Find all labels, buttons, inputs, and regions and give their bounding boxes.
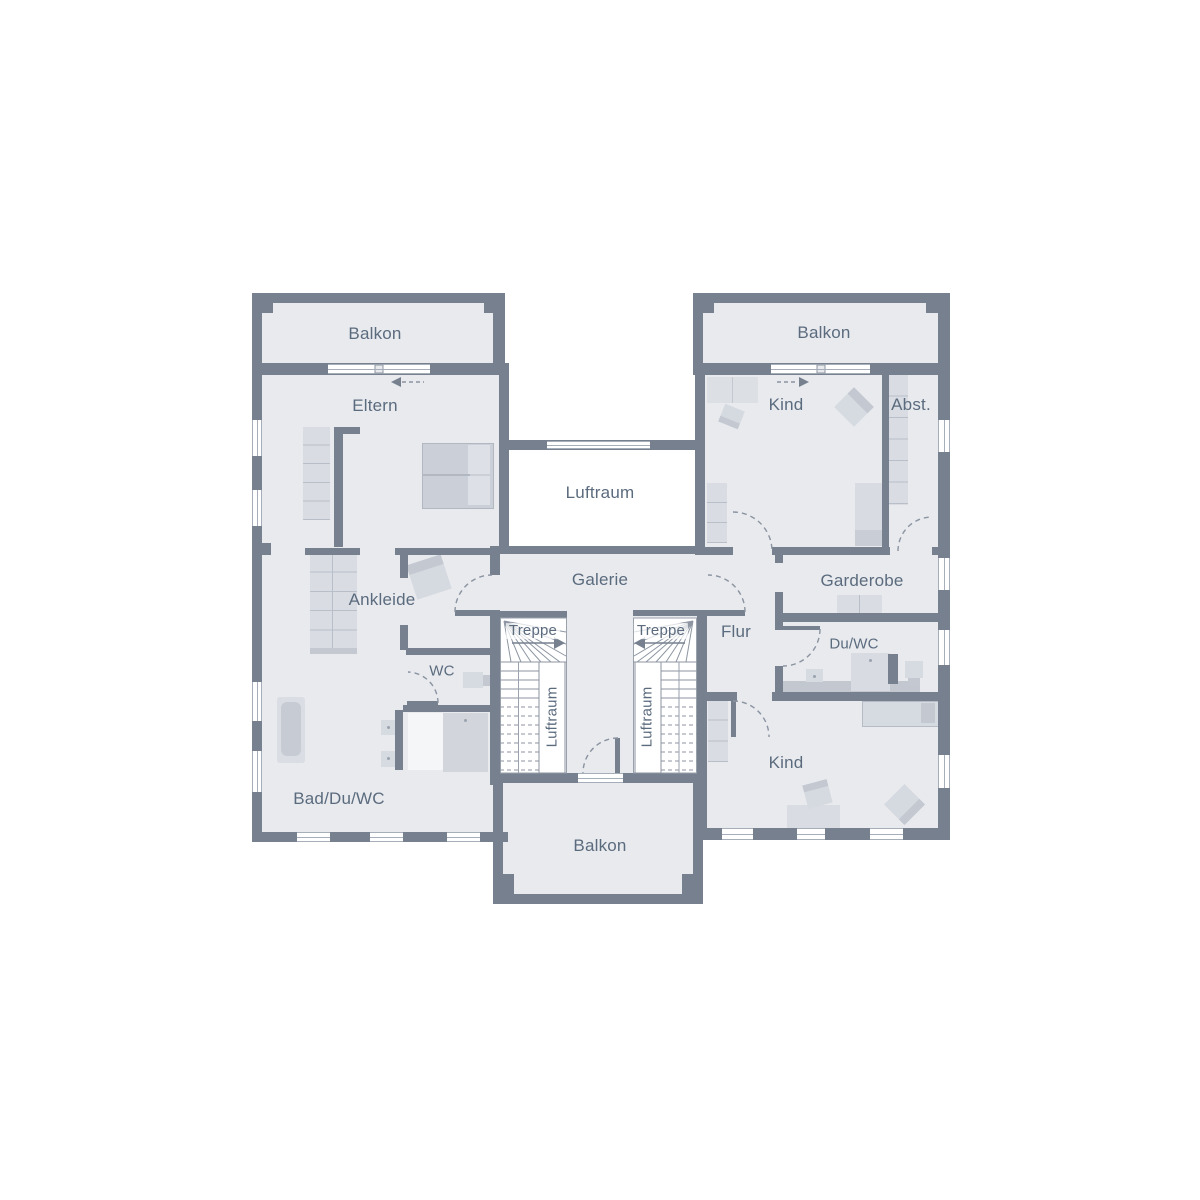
arrow-left-icon [391, 377, 401, 387]
plan-annotations [0, 0, 1200, 1200]
room-label-treppe-left: Treppe [506, 623, 560, 639]
room-label-galerie: Galerie [572, 570, 628, 590]
door-arc-abst [898, 517, 932, 551]
door-arc-galerie-left [455, 575, 492, 612]
floor-plan: Balkon Balkon Eltern Kind Abst. Luftraum… [0, 0, 1200, 1200]
door-arc-kind-bottom [733, 701, 769, 737]
room-label-luftraum-stair-right: Luftraum [639, 687, 656, 748]
room-label-duwc: Du/WC [829, 636, 878, 653]
room-label-treppe-right: Treppe [634, 623, 688, 639]
door-arc-kind-top [733, 512, 772, 551]
door-arc-duwc [783, 629, 820, 666]
room-label-balkon-top-left: Balkon [348, 324, 401, 344]
door-arc-galerie-right [708, 575, 745, 612]
room-label-balkon-top-right: Balkon [797, 323, 850, 343]
room-label-garderobe: Garderobe [820, 571, 903, 591]
room-label-balkon-bottom: Balkon [573, 836, 626, 856]
room-label-eltern: Eltern [352, 396, 398, 416]
room-label-luftraum-center: Luftraum [566, 483, 635, 503]
room-label-ankleide: Ankleide [349, 590, 416, 610]
room-label-luftraum-stair-left: Luftraum [544, 687, 561, 748]
room-label-abst: Abst. [891, 395, 931, 415]
entry-arrows [391, 377, 809, 387]
room-label-kind-top: Kind [769, 395, 804, 415]
door-arc-balcony-bottom [583, 738, 618, 773]
room-label-wc: WC [429, 663, 454, 680]
room-label-kind-bottom: Kind [769, 753, 804, 773]
room-label-bad-du-wc: Bad/Du/WC [293, 789, 385, 809]
arrow-right-icon [799, 377, 809, 387]
room-label-flur: Flur [721, 622, 751, 642]
